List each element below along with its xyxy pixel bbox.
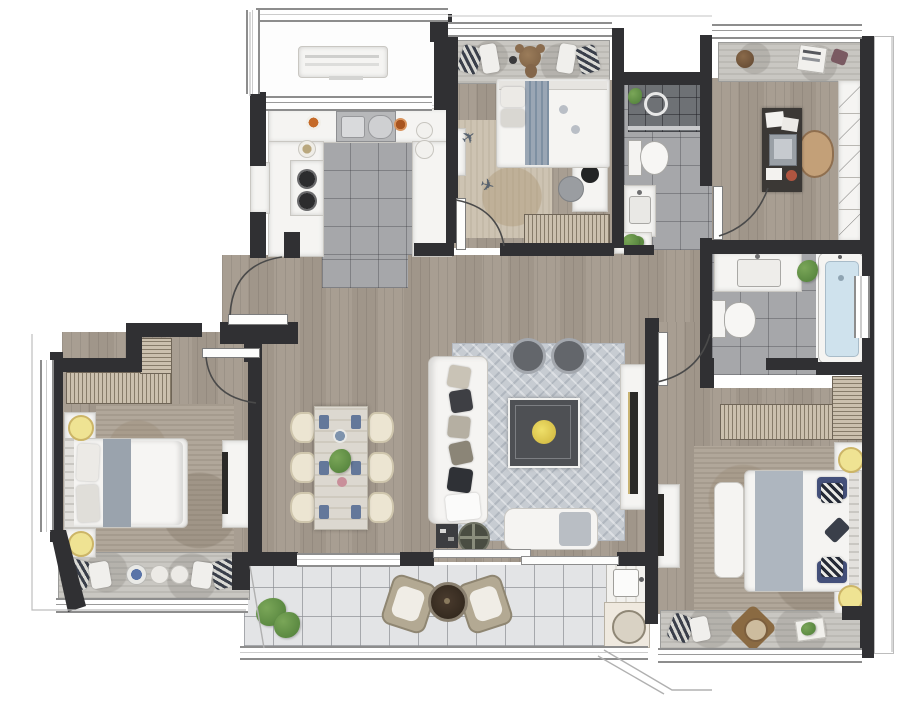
window-bedroom-right-bay: [658, 648, 862, 663]
study-door-leaf: [713, 186, 723, 240]
wall: [414, 243, 454, 256]
table-centerpiece: [329, 449, 351, 473]
window-living: [297, 553, 400, 567]
bunny-print: [559, 105, 568, 114]
living-tv: [628, 392, 638, 494]
bedroom-tv: [222, 452, 228, 514]
side-table: [436, 524, 458, 548]
wall: [860, 36, 874, 74]
wall: [617, 552, 647, 566]
sofa-pillow: [447, 415, 471, 439]
dining-chair: [368, 452, 394, 483]
sofa-pillow: [446, 364, 471, 389]
bed-headboard: [849, 471, 859, 591]
bed-runner-blanket: [525, 81, 549, 165]
decor-plate: [170, 565, 189, 584]
plate: [333, 429, 347, 443]
bookshelf-cell: [839, 81, 861, 114]
laptop: [769, 134, 797, 166]
dining-chair: [368, 412, 394, 443]
papers: [781, 117, 799, 132]
dining-chair: [290, 492, 316, 523]
master-vanity: [714, 252, 802, 292]
wardrobe: [832, 376, 864, 440]
exterior-band-right: [874, 36, 894, 654]
wall: [500, 243, 614, 256]
dining-chair: [290, 412, 316, 443]
bookshelf-cell: [839, 113, 861, 146]
wall: [624, 245, 654, 255]
place-setting: [319, 461, 329, 475]
vanity-sink: [629, 196, 651, 224]
bookshelf-cell: [839, 177, 861, 210]
side-table-item: [440, 529, 446, 533]
decor-plate: [126, 564, 147, 585]
wall: [126, 323, 142, 372]
double-bed: [64, 438, 188, 528]
table-lamp: [838, 447, 864, 473]
coffee-table: [508, 398, 580, 468]
pouf: [510, 338, 546, 374]
faucet: [755, 254, 760, 259]
wall: [400, 552, 434, 566]
washing-machine: [604, 602, 650, 648]
sofa-throw: [445, 492, 482, 521]
teddy-body: [525, 64, 537, 78]
window-bedroom-left: [40, 360, 54, 532]
wall: [700, 35, 712, 186]
bookshelf: [838, 80, 862, 242]
bed-headboard: [65, 439, 74, 527]
shower-drain: [644, 92, 668, 116]
kids-bed: [496, 78, 610, 168]
dining-chair: [290, 452, 316, 483]
faucet: [639, 577, 644, 582]
floor-plan: ✈ ✈: [0, 0, 910, 706]
sofa-pillow: [448, 388, 473, 413]
place-setting: [319, 505, 329, 519]
wall: [700, 240, 874, 254]
bench-throw: [559, 512, 591, 546]
wall: [248, 332, 262, 558]
book-print: [800, 621, 817, 636]
place-setting: [319, 415, 329, 429]
tub-faucet: [838, 255, 842, 259]
wall: [62, 358, 128, 372]
desk-chair: [798, 130, 834, 178]
pouf: [551, 338, 587, 374]
sliding-door-panel: [521, 556, 619, 565]
laundry-counter: [606, 562, 650, 604]
bowl-decor: [306, 115, 321, 130]
wall: [250, 212, 266, 258]
tray-pattern: [460, 536, 488, 539]
study-desk: [762, 108, 802, 192]
zebra-pillow: [821, 483, 843, 503]
window: [246, 10, 260, 94]
window-kids-bay: [448, 22, 612, 37]
bedroom-tv: [658, 494, 664, 556]
faucet: [637, 190, 642, 195]
wardrobe: [140, 338, 172, 374]
laptop-screen: [774, 139, 792, 159]
floor-entry-tile: [322, 255, 408, 288]
shower-glass: [628, 126, 700, 130]
plate-decor: [416, 122, 433, 139]
decor-plate: [150, 565, 169, 584]
bathroom-vanity: [624, 185, 656, 237]
dining-chair: [368, 492, 394, 523]
flower-centerpiece: [532, 420, 556, 444]
sink-basin: [368, 115, 393, 139]
wall: [284, 232, 300, 258]
ac-unit-vent: [305, 63, 379, 66]
bed-pillow: [501, 109, 525, 127]
tub-drain: [838, 275, 844, 281]
wardrobe: [66, 372, 172, 404]
bed-pillow: [76, 484, 100, 522]
wall: [250, 92, 266, 166]
book: [803, 50, 821, 55]
laundry-sink: [613, 569, 639, 597]
ac-unit: [298, 46, 388, 78]
lounge-cushion: [468, 584, 505, 623]
shower: [628, 78, 700, 132]
sliding-door-panel: [433, 549, 531, 558]
book: [802, 57, 820, 62]
bench-daybed: [504, 508, 598, 550]
window-kitchen: [266, 96, 432, 111]
copper-pot: [394, 118, 407, 131]
gas-stove: [290, 160, 324, 216]
sofa-pillow: [446, 466, 473, 493]
stove-burner: [297, 169, 317, 189]
kitchen-double-sink: [336, 111, 396, 142]
entry-door-leaf: [228, 314, 288, 325]
kids-wardrobe: [524, 214, 610, 244]
bay-decor-dot: [509, 56, 517, 64]
wall-tv-bedroom-right: [645, 322, 658, 624]
bed-runner: [755, 471, 803, 591]
wall: [862, 368, 874, 614]
plate: [337, 477, 347, 487]
bed-pillow: [501, 87, 525, 107]
bookshelf-cell: [839, 209, 861, 240]
wall: [612, 28, 624, 248]
kids-pouf: [558, 176, 584, 202]
dining-table: [314, 406, 368, 530]
window-master-bath: [854, 276, 870, 338]
bowl: [786, 170, 797, 181]
side-table-item: [448, 537, 454, 541]
decor-pot: [736, 50, 754, 68]
sink-basin: [341, 116, 365, 138]
table-lamp: [68, 531, 94, 557]
fridge: [250, 162, 270, 214]
washer-drum: [612, 610, 646, 644]
bed-runner: [103, 439, 131, 527]
wall: [766, 358, 818, 370]
zebra-pattern: [821, 483, 843, 503]
place-setting: [351, 415, 361, 429]
bay-pillow: [88, 560, 112, 589]
teddy-ear: [515, 44, 524, 53]
bookshelf-cell: [839, 145, 861, 178]
foot-bench: [714, 482, 744, 578]
double-bed: [744, 470, 862, 592]
wardrobe: [720, 404, 834, 440]
wall: [860, 72, 874, 248]
lounge-cushion: [390, 584, 427, 623]
zebra-pillow: [821, 557, 843, 577]
bedroom-left-door-leaf: [202, 348, 260, 358]
wall: [142, 323, 202, 337]
table-lamp: [68, 415, 94, 441]
bedroom-right-door-leaf: [658, 332, 668, 386]
vanity-sink: [737, 259, 781, 287]
zebra-pattern: [821, 557, 843, 577]
wall: [700, 248, 712, 360]
window-bedroom-left-bay: [56, 598, 248, 613]
wall: [645, 318, 659, 332]
bed-pillow: [76, 443, 100, 481]
table-decor: [444, 598, 450, 604]
ac-unit-vent: [305, 55, 379, 58]
wall: [613, 72, 712, 85]
wall: [860, 606, 874, 658]
sofa-pillow: [448, 440, 474, 466]
wall: [700, 358, 714, 388]
stove-burner: [297, 191, 317, 211]
ac-unit-foot: [329, 76, 363, 80]
toilet-bowl: [724, 302, 756, 338]
bunny-print: [571, 125, 580, 134]
bed-duvet: [131, 441, 183, 525]
plate-decor: [415, 140, 434, 159]
balcony-railing: [240, 646, 648, 660]
window: [256, 8, 448, 22]
balcony-round-table: [428, 582, 468, 622]
tray-cup: [744, 618, 768, 642]
books-stack: [796, 44, 827, 74]
exterior-outline: [598, 656, 664, 694]
window-study-bay: [712, 24, 862, 39]
place-setting: [351, 505, 361, 519]
teddy-ear: [536, 44, 545, 53]
teddy-bear: [519, 46, 541, 68]
notebook: [766, 168, 782, 180]
kids-door-leaf: [456, 198, 466, 250]
bed-cushion: [824, 517, 851, 544]
wall: [232, 552, 250, 590]
place-setting: [351, 461, 361, 475]
bay-pillow: [190, 561, 213, 590]
plate-decor: [298, 140, 316, 158]
book: [795, 617, 827, 642]
